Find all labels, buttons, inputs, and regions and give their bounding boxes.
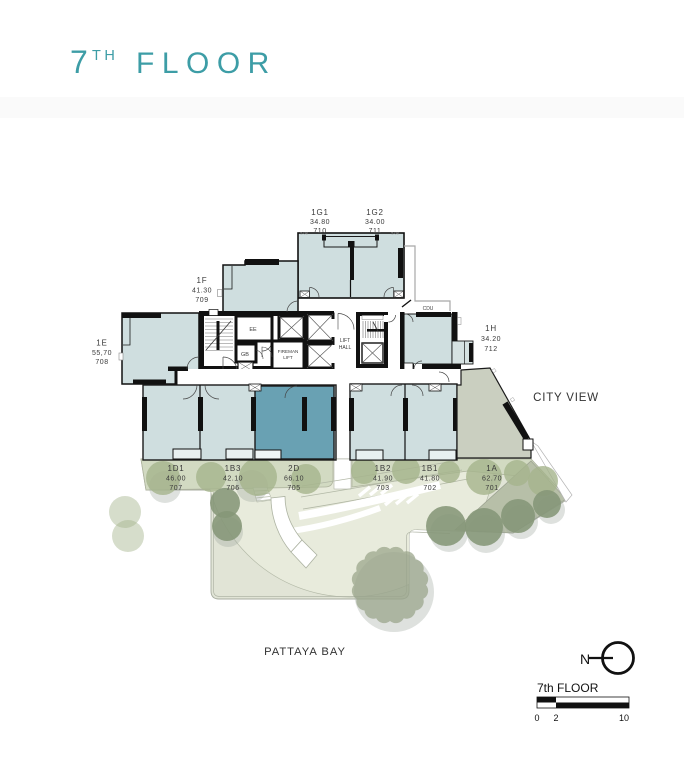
svg-text:703: 703 [376,485,389,492]
svg-text:5.08: 5.08 [300,232,307,236]
svg-text:709: 709 [195,297,208,304]
svg-text:GB: GB [241,352,249,358]
svg-text:N: N [580,651,590,667]
svg-text:46.00: 46.00 [166,476,186,483]
svg-text:41.90: 41.90 [373,476,393,483]
svg-text:7th FLOOR: 7th FLOOR [537,681,599,695]
svg-text:62.70: 62.70 [482,476,502,483]
svg-text:2: 2 [553,713,558,723]
svg-text:HALL: HALL [339,345,352,351]
svg-text:712: 712 [484,346,497,353]
svg-text:55,70: 55,70 [92,350,112,357]
svg-text:710: 710 [313,228,326,235]
svg-text:LIFT: LIFT [283,355,293,360]
svg-text:1H: 1H [485,324,497,333]
svg-text:1G1: 1G1 [311,208,329,217]
svg-text:1E: 1E [96,339,107,348]
svg-text:1F: 1F [197,276,208,285]
svg-text:1A: 1A [486,464,497,473]
svg-text:711: 711 [369,228,382,235]
svg-text:705: 705 [287,485,300,492]
svg-text:701: 701 [485,485,498,492]
svg-text:34.20: 34.20 [481,336,501,343]
svg-text:CDU: CDU [423,306,434,312]
svg-text:2D: 2D [288,464,300,473]
svg-text:42.10: 42.10 [223,476,243,483]
svg-text:1B2: 1B2 [375,464,392,473]
svg-text:1B1: 1B1 [422,464,439,473]
svg-text:LIFT: LIFT [340,338,350,344]
svg-text:34.00: 34.00 [365,219,385,226]
svg-text:1B3: 1B3 [225,464,242,473]
svg-text:1G2: 1G2 [366,208,384,217]
svg-text:10: 10 [619,713,629,723]
svg-text:FIREMAN: FIREMAN [278,349,299,354]
svg-text:1D1: 1D1 [167,464,184,473]
svg-text:41.80: 41.80 [420,476,440,483]
svg-text:0: 0 [534,713,539,723]
svg-text:EE: EE [249,327,257,333]
svg-text:708: 708 [95,359,108,366]
svg-text:CITY VIEW: CITY VIEW [533,392,599,404]
svg-text:34.80: 34.80 [310,219,330,226]
svg-text:706: 706 [226,485,239,492]
svg-text:FLOOR: FLOOR [136,47,277,80]
svg-text:5.08: 5.08 [391,232,398,236]
svg-text:707: 707 [169,485,182,492]
svg-text:PATTAYA BAY: PATTAYA BAY [264,646,346,658]
svg-text:66.10: 66.10 [284,476,304,483]
svg-text:41.30: 41.30 [192,288,212,295]
svg-text:TH: TH [92,48,118,64]
svg-text:702: 702 [423,485,436,492]
svg-text:7: 7 [70,44,94,80]
